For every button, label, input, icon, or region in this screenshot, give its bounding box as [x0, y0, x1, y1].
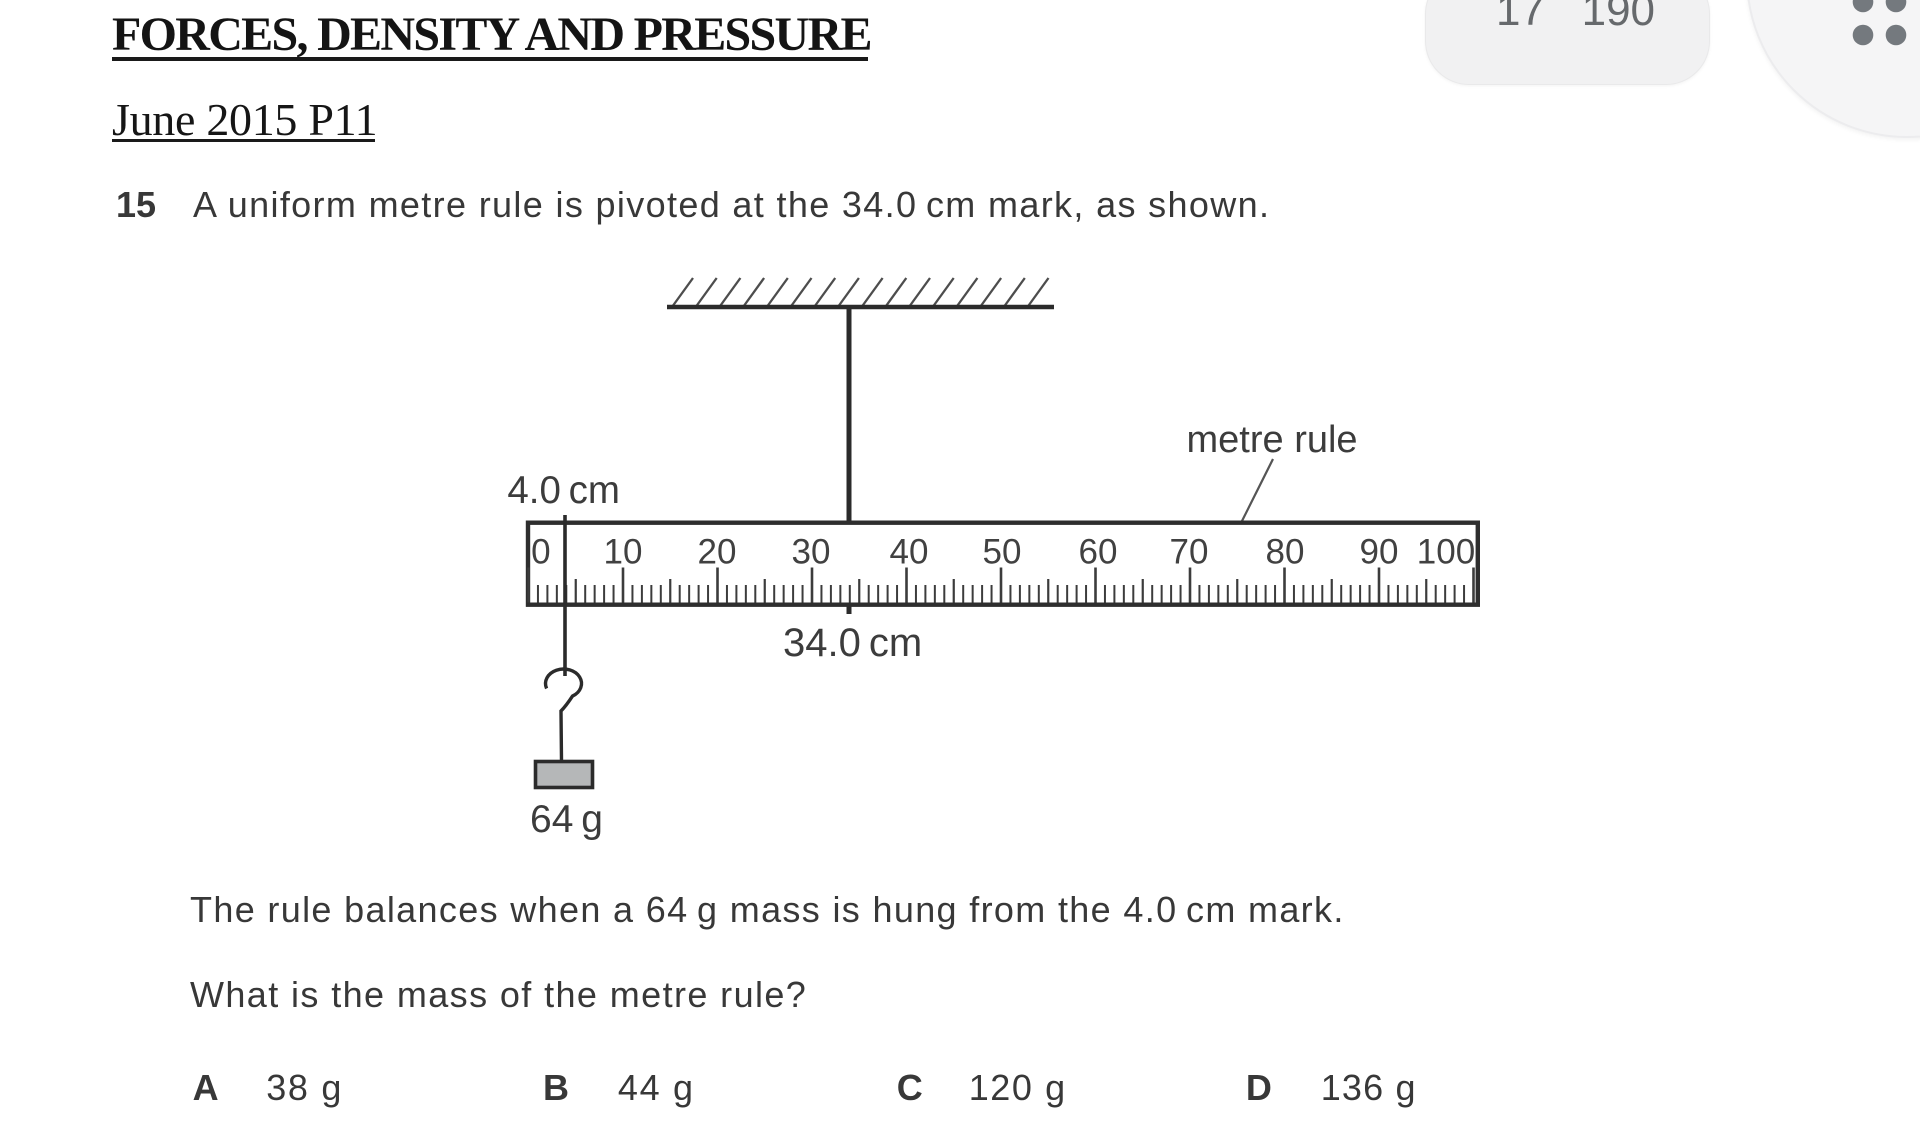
svg-text:10: 10: [604, 533, 643, 572]
svg-text:0: 0: [531, 533, 550, 572]
svg-text:80: 80: [1266, 533, 1305, 572]
svg-text:60: 60: [1079, 533, 1118, 572]
svg-text:50: 50: [983, 533, 1022, 572]
svg-text:100: 100: [1417, 533, 1475, 572]
svg-text:metre rule: metre rule: [1187, 419, 1358, 461]
svg-text:40: 40: [890, 533, 929, 572]
svg-text:4.0 cm: 4.0 cm: [507, 469, 620, 512]
svg-text:90: 90: [1360, 533, 1399, 572]
svg-text:64 g: 64 g: [530, 798, 603, 841]
svg-text:34.0 cm: 34.0 cm: [783, 621, 922, 665]
svg-text:20: 20: [698, 533, 737, 572]
svg-text:30: 30: [792, 533, 831, 572]
svg-text:70: 70: [1170, 533, 1209, 572]
